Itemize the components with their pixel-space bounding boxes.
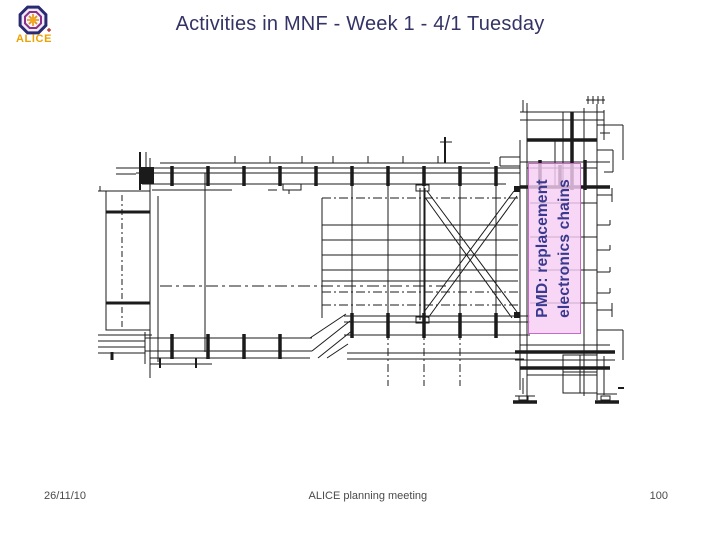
presentation-slide: ALICE Activities in MNF - Week 1 - 4/1 T… [0,0,720,540]
footer-meeting-label: ALICE planning meeting [309,490,428,502]
pmd-annotation-text: PMD: replacement electronics chains [532,179,577,318]
engineering-drawing-canvas [0,0,720,540]
technical-drawing: PMD: replacement electronics chains [0,0,720,540]
pmd-annotation-line1: PMD: replacement [532,179,554,318]
footer-date: 26/11/10 [44,490,86,502]
pmd-annotation-line2: electronics chains [555,179,577,318]
pmd-annotation-box: PMD: replacement electronics chains [528,163,581,334]
footer-page-number: 100 [650,490,668,502]
slide-footer: 26/11/10 ALICE planning meeting 100 [0,490,720,502]
